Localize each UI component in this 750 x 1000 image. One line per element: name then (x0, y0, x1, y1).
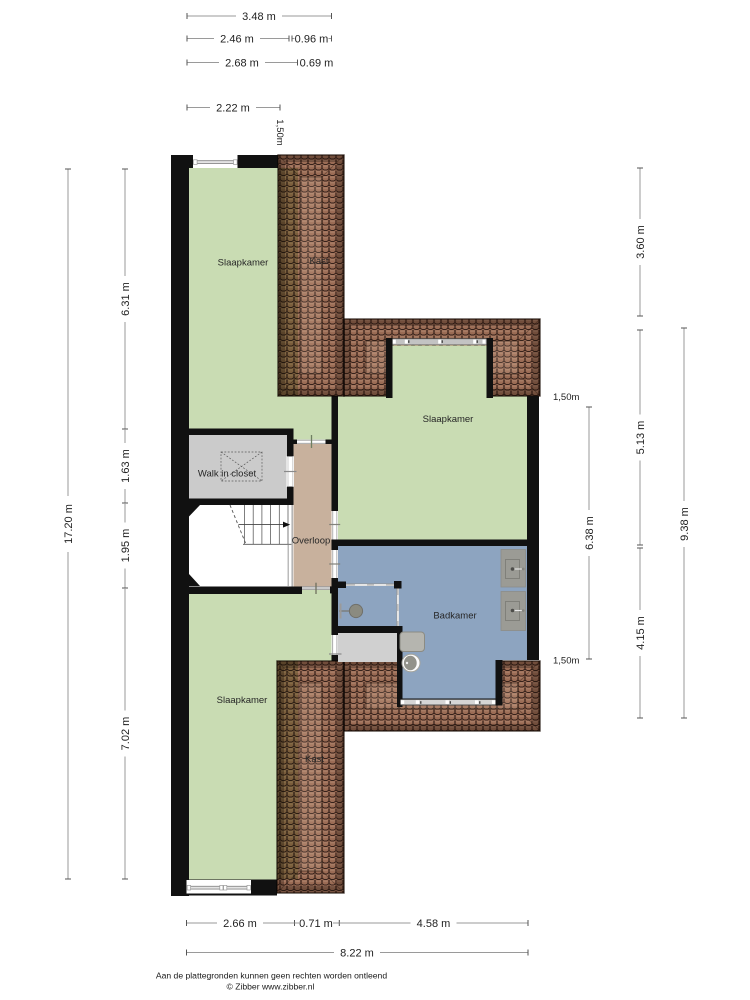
svg-text:Aan de plattegronden kunnen ge: Aan de plattegronden kunnen geen rechten… (156, 971, 387, 981)
svg-text:5.13 m: 5.13 m (635, 421, 647, 455)
svg-text:2.66 m: 2.66 m (223, 918, 257, 930)
svg-text:3.60 m: 3.60 m (635, 225, 647, 259)
svg-text:Walk in closet: Walk in closet (198, 469, 257, 480)
svg-text:9.38 m: 9.38 m (679, 507, 691, 541)
svg-text:2.46 m: 2.46 m (220, 34, 254, 46)
svg-text:2.22 m: 2.22 m (216, 103, 250, 115)
svg-text:2.68 m: 2.68 m (225, 58, 259, 70)
svg-text:8.22 m: 8.22 m (340, 948, 374, 960)
svg-text:Slaapkamer: Slaapkamer (218, 258, 269, 269)
svg-text:1.63 m: 1.63 m (120, 449, 132, 483)
svg-text:1.95 m: 1.95 m (120, 529, 132, 563)
svg-text:Badkamer: Badkamer (433, 611, 476, 622)
svg-text:3.48 m: 3.48 m (242, 11, 276, 23)
svg-text:1,50m: 1,50m (274, 119, 285, 145)
svg-text:1,50m: 1,50m (553, 656, 579, 667)
svg-text:4.15 m: 4.15 m (635, 616, 647, 650)
svg-text:Slaapkamer: Slaapkamer (217, 695, 268, 706)
svg-text:6.31 m: 6.31 m (120, 282, 132, 316)
svg-text:Kast: Kast (305, 754, 324, 765)
svg-text:7.02 m: 7.02 m (120, 717, 132, 751)
svg-text:0.71 m: 0.71 m (299, 918, 333, 930)
svg-text:Slaapkamer: Slaapkamer (423, 414, 474, 425)
svg-text:Overloop: Overloop (292, 536, 331, 547)
svg-text:© Zibber www.zibber.nl: © Zibber www.zibber.nl (226, 982, 314, 992)
svg-text:4.58 m: 4.58 m (417, 918, 451, 930)
svg-text:0.69 m: 0.69 m (300, 58, 334, 70)
svg-text:0.96 m: 0.96 m (295, 34, 329, 46)
svg-text:Kast: Kast (309, 256, 328, 267)
svg-text:6.38 m: 6.38 m (584, 516, 596, 550)
svg-text:17.20 m: 17.20 m (63, 504, 75, 544)
svg-text:1,50m: 1,50m (553, 392, 579, 403)
